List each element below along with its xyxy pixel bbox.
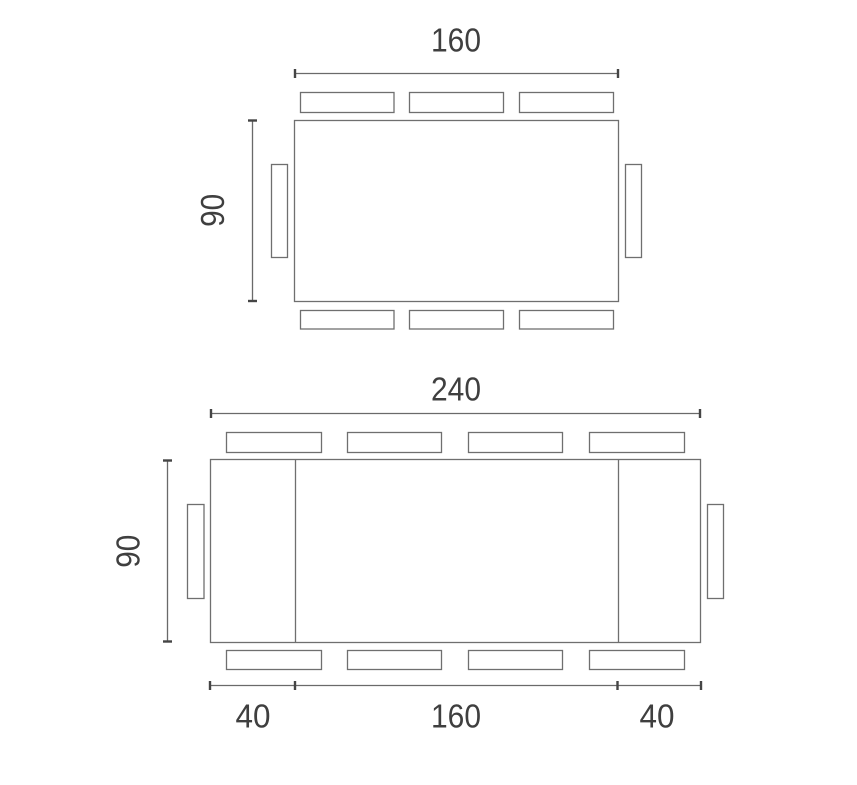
svg-text:240: 240 [431,372,481,409]
svg-text:160: 160 [431,699,481,736]
svg-text:90: 90 [111,535,148,568]
svg-text:160: 160 [431,23,481,60]
svg-text:90: 90 [195,194,232,227]
svg-text:40: 40 [236,699,271,736]
svg-text:40: 40 [640,699,675,736]
